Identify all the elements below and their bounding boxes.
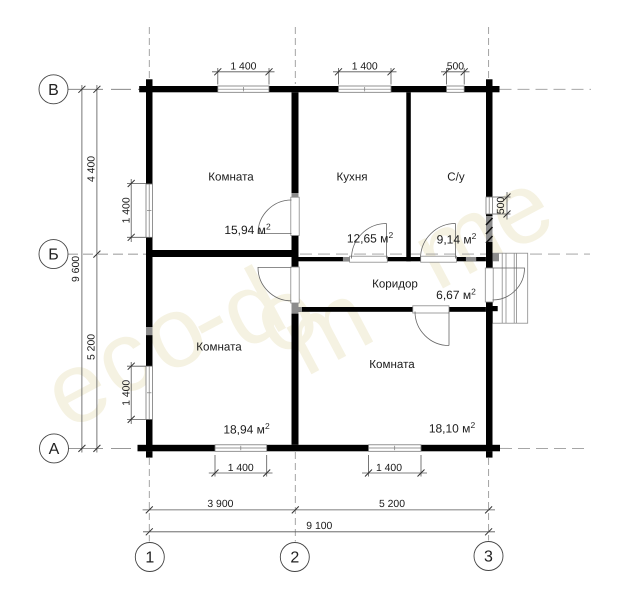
svg-text:2: 2 bbox=[290, 550, 299, 567]
svg-text:1: 1 bbox=[145, 550, 154, 567]
svg-text:18,94 м2: 18,94 м2 bbox=[223, 421, 270, 437]
svg-text:3 900: 3 900 bbox=[207, 499, 233, 510]
svg-text:1 400: 1 400 bbox=[122, 380, 133, 406]
svg-text:В: В bbox=[48, 82, 59, 99]
svg-text:А: А bbox=[49, 441, 60, 458]
svg-text:9 100: 9 100 bbox=[306, 521, 332, 532]
svg-text:500: 500 bbox=[447, 62, 465, 73]
svg-text:Комната: Комната bbox=[196, 341, 242, 354]
svg-text:12,65 м2: 12,65 м2 bbox=[347, 230, 394, 246]
svg-text:Кухня: Кухня bbox=[336, 171, 367, 184]
svg-text:5 200: 5 200 bbox=[87, 334, 98, 360]
svg-text:Комната: Комната bbox=[208, 171, 254, 184]
svg-text:Б: Б bbox=[48, 247, 59, 264]
svg-text:5 200: 5 200 bbox=[379, 499, 405, 510]
svg-text:6,67 м2: 6,67 м2 bbox=[436, 287, 476, 303]
svg-text:18,10 м2: 18,10 м2 bbox=[429, 420, 476, 436]
svg-text:1 400: 1 400 bbox=[352, 62, 378, 73]
svg-text:1 400: 1 400 bbox=[376, 463, 402, 474]
svg-text:1 400: 1 400 bbox=[230, 62, 256, 73]
svg-text:Коридор: Коридор bbox=[372, 278, 418, 291]
svg-text:1 400: 1 400 bbox=[122, 197, 133, 223]
svg-text:3: 3 bbox=[484, 549, 493, 566]
svg-text:Комната: Комната bbox=[369, 358, 415, 371]
svg-text:1 400: 1 400 bbox=[228, 463, 254, 474]
svg-text:15,94 м2: 15,94 м2 bbox=[224, 222, 271, 238]
svg-text:9,14 м2: 9,14 м2 bbox=[437, 231, 477, 247]
svg-text:4 400: 4 400 bbox=[87, 156, 98, 182]
svg-text:9 600: 9 600 bbox=[71, 256, 82, 282]
svg-text:С/у: С/у bbox=[447, 171, 465, 184]
svg-text:500: 500 bbox=[496, 197, 507, 215]
